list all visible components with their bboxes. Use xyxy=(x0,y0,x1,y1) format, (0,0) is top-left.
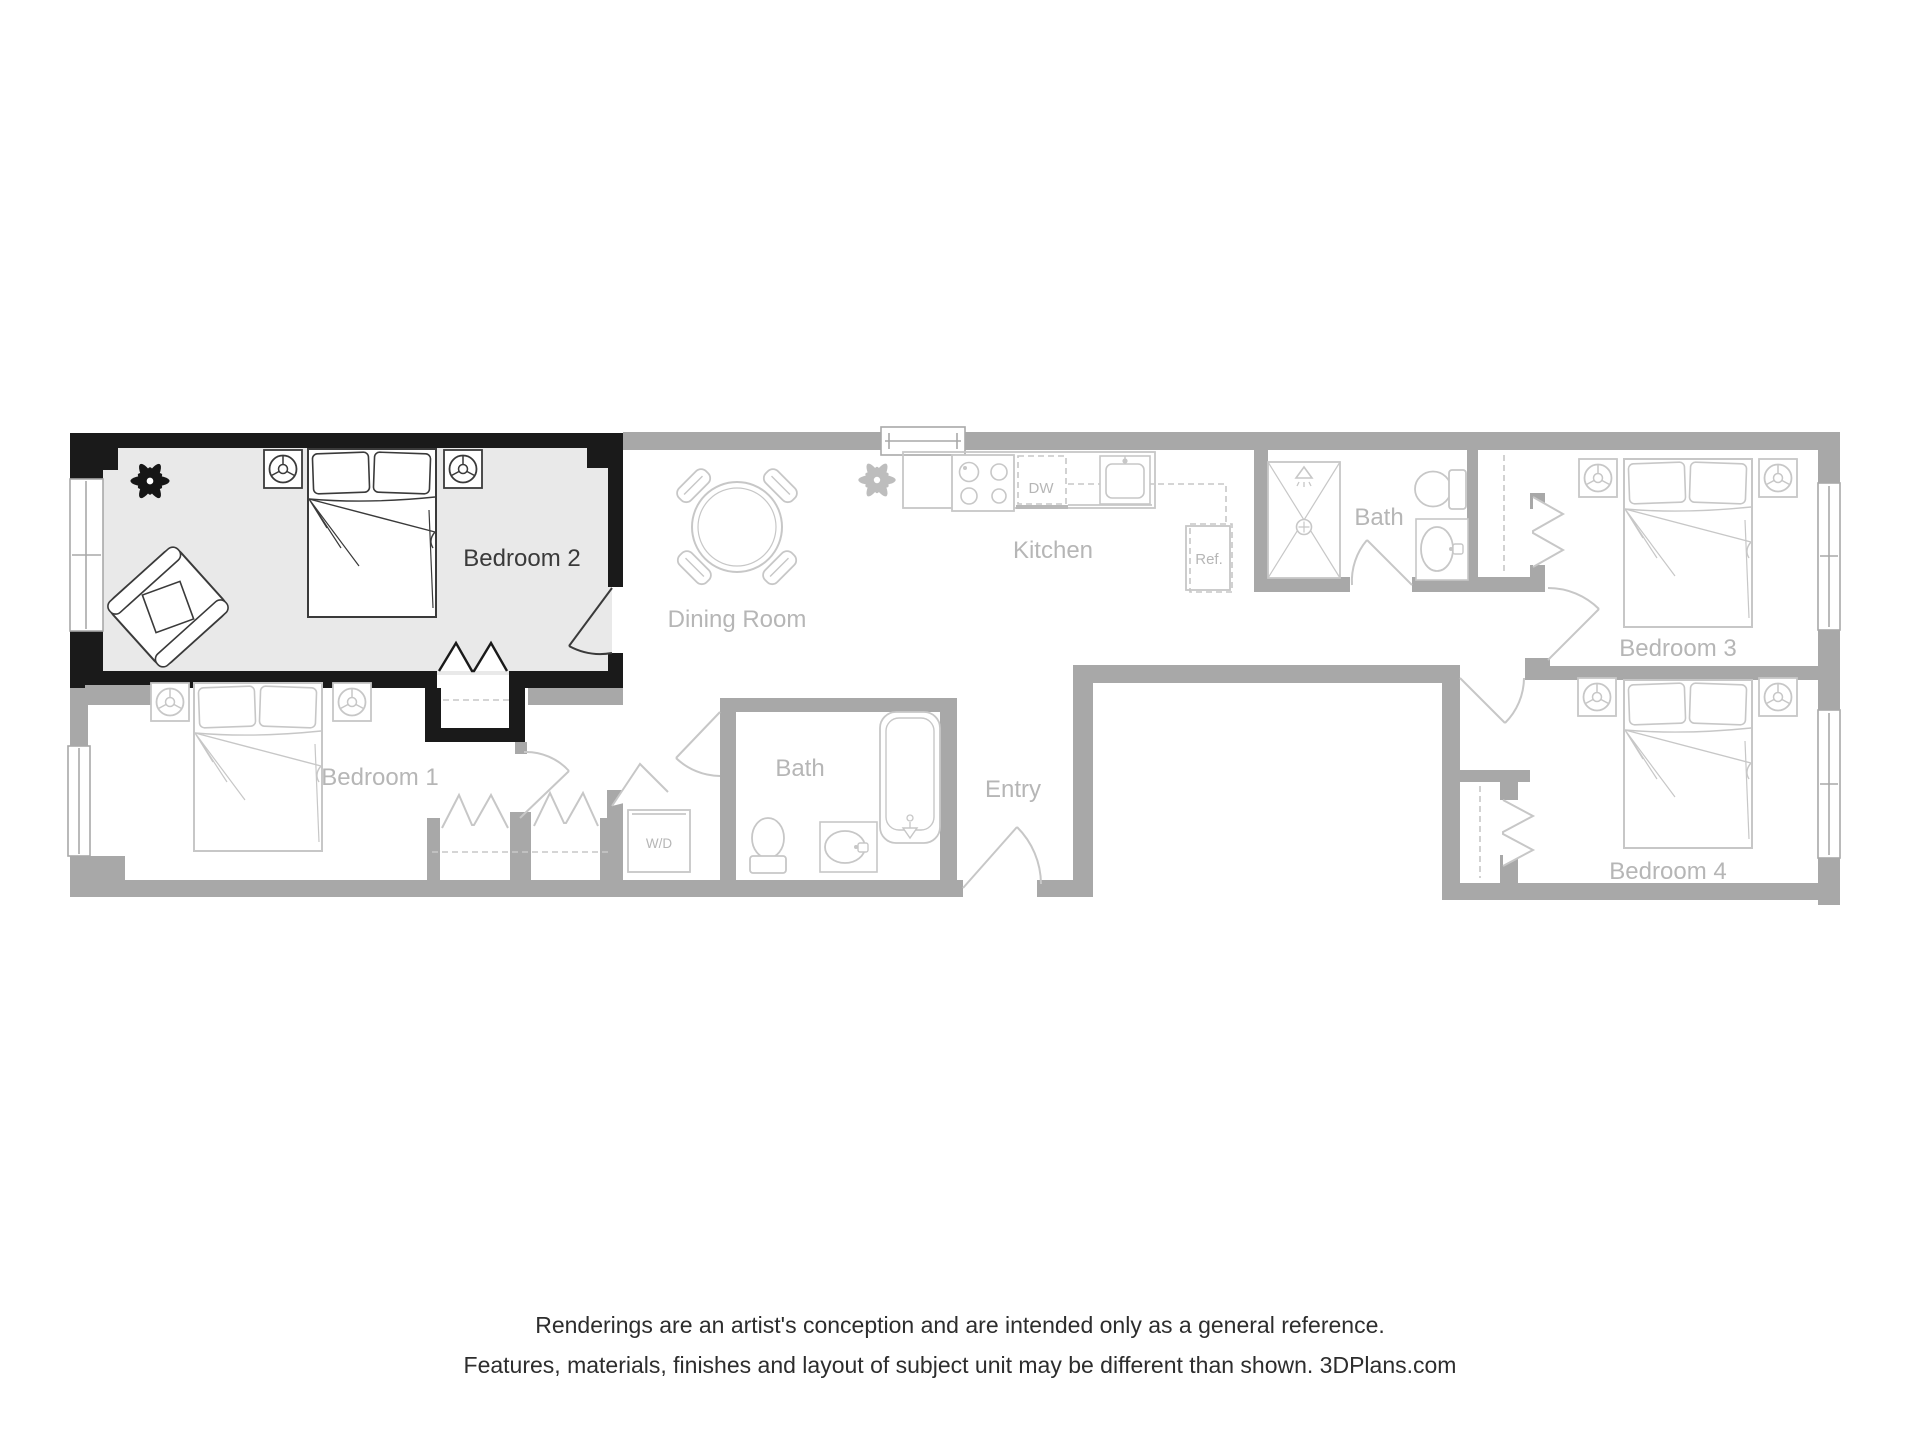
upper-bath-door xyxy=(1352,540,1412,585)
kitchen-label: Kitchen xyxy=(1013,537,1093,564)
bedroom4-nightstand-lamp-icon xyxy=(1759,678,1797,716)
bedroom4-window xyxy=(1818,710,1840,858)
bedroom2-nightstand-lamp-icon xyxy=(444,450,482,488)
dining-table xyxy=(674,466,800,587)
bedroom3-nightstand-lamp-icon xyxy=(1759,459,1797,497)
bedroom4-closet-bifold-door xyxy=(1503,800,1533,866)
bedroom4-door xyxy=(1460,678,1524,723)
toilet-main xyxy=(750,818,786,873)
bedroom1-window xyxy=(68,746,90,856)
bedroom4-nightstand-lamp-icon xyxy=(1578,678,1616,716)
bedroom2-bed xyxy=(308,449,436,617)
bedroom2-window xyxy=(70,479,103,631)
bedroom1-bed xyxy=(194,683,322,851)
washer-dryer-label: W/D xyxy=(646,836,672,851)
upper-bath-label: Bath xyxy=(1354,504,1403,531)
refrigerator-label: Ref. xyxy=(1195,551,1223,568)
bedroom3-closet-bifold-door xyxy=(1533,497,1563,567)
bedroom2-nightstand-lamp-icon xyxy=(264,450,302,488)
bedroom1-nightstand-lamp-icon xyxy=(151,683,189,721)
bedroom4-label: Bedroom 4 xyxy=(1609,858,1726,885)
bedroom3-window xyxy=(1818,483,1840,630)
washer-dryer-door xyxy=(612,764,668,806)
bathtub xyxy=(880,712,940,843)
main-bath-label: Bath xyxy=(775,755,824,782)
bedroom2-label: Bedroom 2 xyxy=(463,545,580,572)
footer-disclaimer-line1: Renderings are an artist's conception an… xyxy=(0,1312,1920,1339)
kitchen-window xyxy=(881,427,965,455)
hall-closet-bifold-door xyxy=(442,795,508,828)
kitchen-sink xyxy=(1100,456,1150,504)
toilet-upper xyxy=(1415,470,1466,509)
entry-door xyxy=(963,827,1041,888)
sink-main xyxy=(820,822,877,872)
entry-label: Entry xyxy=(985,776,1041,803)
bedroom1-label: Bedroom 1 xyxy=(321,764,438,791)
sink-upper xyxy=(1416,519,1468,580)
bedroom3-label: Bedroom 3 xyxy=(1619,635,1736,662)
bedroom4-bed xyxy=(1624,680,1752,848)
dining-plant-icon xyxy=(858,461,895,499)
bedroom3-nightstand-lamp-icon xyxy=(1579,459,1617,497)
bedroom3-door xyxy=(1548,588,1599,660)
floor-plan-canvas: Bedroom 2 xyxy=(0,0,1920,1440)
hall-closet-bifold-door xyxy=(534,793,598,826)
main-bath-door xyxy=(676,712,720,776)
stove xyxy=(952,455,1014,511)
footer-disclaimer-line2: Features, materials, finishes and layout… xyxy=(0,1352,1920,1379)
shower xyxy=(1268,462,1340,578)
dining-room-label: Dining Room xyxy=(668,606,807,633)
bedroom1-nightstand-lamp-icon xyxy=(333,683,371,721)
bedroom3-bed xyxy=(1624,459,1752,627)
floor-plan: Bedroom 2 xyxy=(0,0,1920,1440)
dishwasher-label: DW xyxy=(1029,480,1055,497)
